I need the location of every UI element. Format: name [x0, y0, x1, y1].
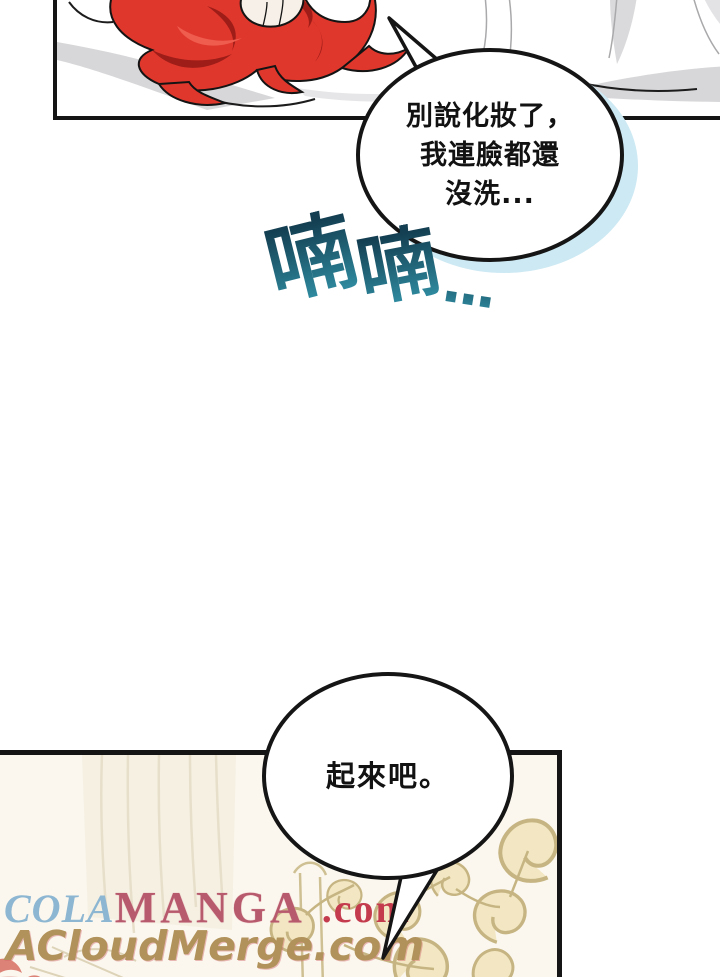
sfx-character: 喃	[258, 205, 365, 312]
speech-text-line: 別說化妝了，	[406, 97, 574, 136]
speech-text-line: 我連臉都還	[420, 136, 560, 175]
sfx-ellipsis: ...	[438, 255, 498, 318]
watermark-acloudmerge: ACloudMerge.com	[6, 922, 424, 970]
sfx-mumble: 喃 喃 ...	[263, 198, 496, 331]
speech-text-line: 起來吧。	[326, 759, 450, 793]
speech-bubble-bottom: 起來吧。	[262, 672, 514, 880]
comic-page: 別說化妝了， 我連臉都還 沒洗... 喃 喃 ... 起來吧。 COLAMANG…	[0, 0, 720, 977]
sfx-character: 喃	[351, 220, 445, 314]
